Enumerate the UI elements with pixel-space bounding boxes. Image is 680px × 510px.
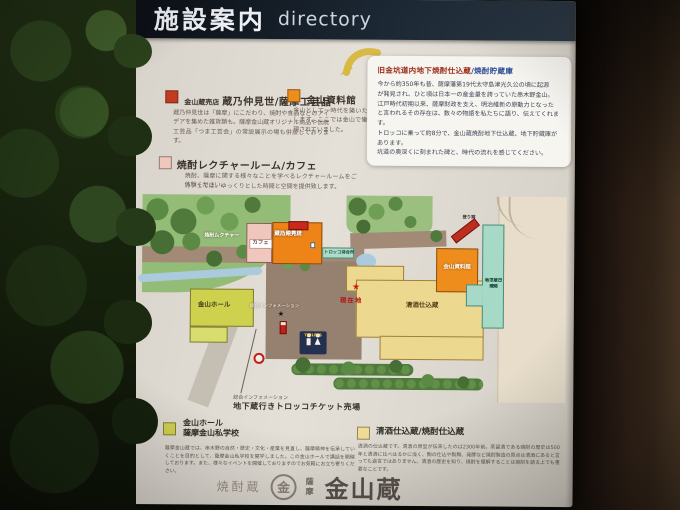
tree-icon xyxy=(421,374,434,387)
vending-machine-icon xyxy=(280,321,287,334)
legend-museum-title: 金山資料館 xyxy=(306,95,356,106)
sign-header: 施設案内 directory xyxy=(128,0,576,41)
sake-brewery-label: 清酒仕込蔵 xyxy=(406,299,439,309)
hall-building-label: 金山ホール xyxy=(198,298,231,308)
tree-icon xyxy=(348,198,366,216)
tree-icon xyxy=(170,208,196,234)
trolley-platform-building xyxy=(466,284,483,306)
brand-logo-mark-icon: 金 xyxy=(271,474,297,500)
info-box-line: と言われるその存在は、数々の物語を私たちに語り、伝えてくれます。 xyxy=(377,109,561,130)
leaf-cluster xyxy=(116,208,156,246)
sign-title-english: directory xyxy=(278,8,372,31)
legend-lecture-description-2: カフェでは、ゆっくりとした時間と空間を提供致します。 xyxy=(185,181,357,191)
tree-icon xyxy=(404,216,416,228)
ticket-office-caption-main: 地下蔵行きトロッコチケット売場 xyxy=(233,401,361,413)
you-are-here-label: 現在地 xyxy=(340,294,363,304)
facility-map: 金山ホール カフェ 焼酎レクチャー ルーム 金山蔵売店 蔵乃仲見世 トロッコ待合… xyxy=(141,194,566,403)
cafe-label: カフェ xyxy=(249,239,272,249)
photo-of-directory-sign: 施設案内 directory 金山蔵売店蔵乃仲見世/薩摩工芸品 蔵乃仲見世は「薩… xyxy=(0,0,680,510)
legend-shop-prefix: 金山蔵売店 xyxy=(184,98,219,106)
legend-swatch-lecture xyxy=(159,156,172,169)
climbing-kiln-building xyxy=(451,218,480,243)
tree-icon xyxy=(457,376,469,388)
brand-logo-prefix: 焼酎蔵 xyxy=(217,478,262,495)
legend-hall-title-2: 薩摩金山私学校 xyxy=(183,429,239,440)
information-desk-label: 総合インフォメーション xyxy=(250,303,299,309)
leaf-cluster xyxy=(112,398,158,444)
legend-sake-title: 清酒仕込蔵/焼酎仕込蔵 xyxy=(376,425,464,438)
brand-logo: 焼酎蔵 金 薩摩 金山蔵 xyxy=(216,469,402,505)
tree-icon xyxy=(430,230,442,242)
trolley-platform-building xyxy=(482,224,505,328)
museum-building-label: 金山資料館 xyxy=(438,264,476,272)
sign-title-japanese: 施設案内 xyxy=(154,0,266,37)
legend-hall-heading: 金山ホール 薩摩金山私学校 xyxy=(183,418,239,439)
info-box-title-sub: /焼酎貯蔵庫 xyxy=(471,66,513,75)
information-star-icon: ★ xyxy=(278,311,284,318)
shop-building-roof xyxy=(288,221,308,230)
legend-swatch-hall xyxy=(163,422,176,435)
info-box-line: 坑道の奥深くに刻まれた碑と、時代の流れを感じてください。 xyxy=(377,148,561,159)
hall-building-annex xyxy=(190,326,228,342)
tree-icon xyxy=(389,360,402,373)
leaf-cluster xyxy=(108,116,152,156)
toilets-label: TOILETS xyxy=(300,333,327,337)
info-box-title: 旧金坑道内地下焼酎仕込蔵/焼酎貯蔵庫 xyxy=(377,65,561,77)
info-box-line: が発見され、ひと頃は日本一の産金量を誇っていた串木野金山。 xyxy=(377,89,561,100)
mine-info-box: 旧金坑道内地下焼酎仕込蔵/焼酎貯蔵庫 今から約350年も昔、薩摩藩第19代太守島… xyxy=(367,56,572,167)
sake-brewery-building xyxy=(379,336,483,361)
you-are-here-star-icon: ★ xyxy=(352,284,360,293)
leaf-cluster xyxy=(104,300,152,344)
leaf-cluster xyxy=(114,34,152,68)
legend-swatch-sake xyxy=(357,427,370,440)
tree-icon xyxy=(182,232,200,250)
toilets-sign: TOILETS xyxy=(300,331,327,354)
info-box-line: トロッコに乗って約8分で、金山蔵焼酎地下仕込蔵、地下貯蔵庫が xyxy=(377,128,561,139)
brand-logo-name: 金山蔵 xyxy=(324,469,402,505)
wooden-post xyxy=(570,0,680,510)
climbing-kiln-label: 登り窯 xyxy=(462,214,475,220)
tree-icon xyxy=(341,361,355,375)
ticket-office-caption: 総合インフォメーション 地下蔵行きトロッコチケット売場 xyxy=(233,394,361,413)
tree-icon xyxy=(245,197,261,213)
info-box-title-main: 旧金坑道内地下焼酎仕込蔵 xyxy=(377,66,471,76)
tree-icon xyxy=(368,204,384,220)
tree-icon xyxy=(220,213,238,231)
tree-icon xyxy=(295,357,310,372)
legend-swatch-museum xyxy=(287,89,300,102)
brand-logo-small: 薩摩 xyxy=(306,478,316,496)
tree-icon xyxy=(206,251,222,267)
legend-swatch-shop xyxy=(165,90,178,103)
smoking-area-icon xyxy=(253,353,264,364)
tree-icon xyxy=(389,197,403,211)
trolley-waiting-label: トロッコ待合所 xyxy=(323,249,355,255)
tree-icon xyxy=(196,196,214,214)
aed-icon xyxy=(310,242,315,248)
directory-sign-panel: 施設案内 directory 金山蔵売店蔵乃仲見世/薩摩工芸品 蔵乃仲見世は「薩… xyxy=(124,0,576,507)
tree-icon xyxy=(356,220,370,234)
